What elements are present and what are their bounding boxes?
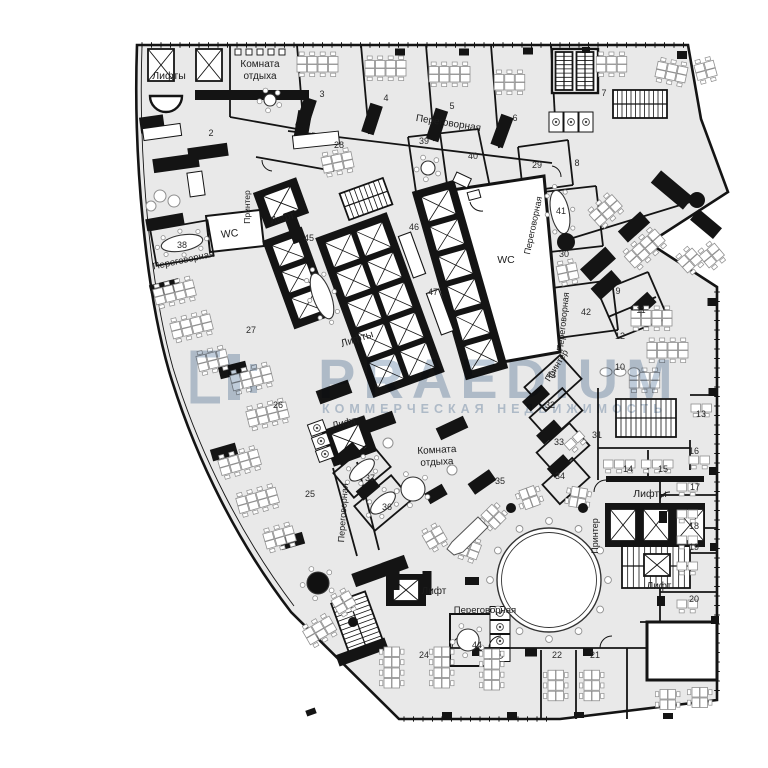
room-number-34: 34 bbox=[555, 471, 565, 481]
room-number-3: 3 bbox=[319, 89, 324, 99]
plan-label-18: Лифты bbox=[633, 488, 667, 500]
room-number-22: 22 bbox=[552, 650, 562, 660]
floor-plan: ЛифтыКомнатаотдыхаПереговорнаяПринтерЛиф… bbox=[0, 0, 768, 768]
room-number-45: 45 bbox=[304, 233, 314, 243]
plan-label-17: Принтер bbox=[590, 518, 600, 554]
room-number-24: 24 bbox=[419, 650, 429, 660]
plan-label-21: Переговорная bbox=[454, 605, 516, 616]
room-number-7: 7 bbox=[601, 88, 606, 98]
room-number-5: 5 bbox=[449, 101, 454, 111]
room-number-26: 26 bbox=[273, 400, 283, 410]
room-number-12: 12 bbox=[615, 331, 625, 341]
room-number-18: 18 bbox=[689, 521, 699, 531]
room-number-35: 35 bbox=[495, 476, 505, 486]
room-number-8: 8 bbox=[574, 158, 579, 168]
room-number-4: 4 bbox=[383, 93, 388, 103]
plan-label-6: WC bbox=[220, 227, 239, 241]
plan-label-20: Лифт bbox=[422, 585, 447, 597]
room-number-27: 27 bbox=[246, 325, 256, 335]
room-number-36: 36 bbox=[382, 502, 392, 512]
plan-label-0: Лифты bbox=[152, 70, 186, 82]
room-number-44: 44 bbox=[472, 640, 482, 650]
room-number-2: 2 bbox=[208, 128, 213, 138]
room-number-25: 25 bbox=[305, 489, 315, 499]
room-number-46: 46 bbox=[409, 222, 419, 232]
plan-label-15: отдыха bbox=[420, 456, 454, 469]
room-number-30: 30 bbox=[559, 249, 569, 259]
floor-plan-stage: ЛифтыКомнатаотдыхаПереговорнаяПринтерЛиф… bbox=[0, 0, 768, 768]
room-number-31: 31 bbox=[592, 430, 602, 440]
room-number-38: 38 bbox=[177, 240, 187, 250]
room-number-6: 6 bbox=[512, 113, 517, 123]
room-number-39: 39 bbox=[419, 136, 429, 146]
room-number-9: 9 bbox=[615, 286, 620, 296]
room-number-42: 42 bbox=[581, 307, 591, 317]
room-number-14: 14 bbox=[623, 464, 633, 474]
plan-label-19: Лифт bbox=[647, 580, 672, 592]
room-number-13: 13 bbox=[696, 409, 706, 419]
room-number-29: 29 bbox=[532, 160, 542, 170]
room-number-37: 37 bbox=[365, 473, 375, 483]
plan-label-1: Комната bbox=[240, 59, 280, 70]
room-number-28: 28 bbox=[334, 140, 344, 150]
room-number-15: 15 bbox=[658, 464, 668, 474]
room-number-41: 41 bbox=[556, 206, 566, 216]
room-number-21: 21 bbox=[590, 650, 600, 660]
room-number-11: 11 bbox=[636, 305, 645, 315]
room-number-33: 33 bbox=[554, 437, 564, 447]
room-number-47: 47 bbox=[428, 287, 438, 297]
plan-label-4: Принтер bbox=[242, 190, 252, 224]
plan-label-9: WC bbox=[497, 254, 515, 266]
watermark-subtitle: КОММЕРЧЕСКАЯ НЕДВИЖИМОСТЬ bbox=[322, 402, 667, 416]
room-number-40: 40 bbox=[468, 151, 478, 161]
room-number-17: 17 bbox=[690, 482, 700, 492]
room-number-20: 20 bbox=[689, 594, 699, 604]
room-number-19: 19 bbox=[689, 542, 699, 552]
plan-label-2: отдыха bbox=[243, 71, 277, 82]
room-number-16: 16 bbox=[689, 446, 699, 456]
watermark-brand: PRAEDIUM bbox=[318, 347, 681, 410]
plan-label-14: Комната bbox=[417, 444, 457, 457]
